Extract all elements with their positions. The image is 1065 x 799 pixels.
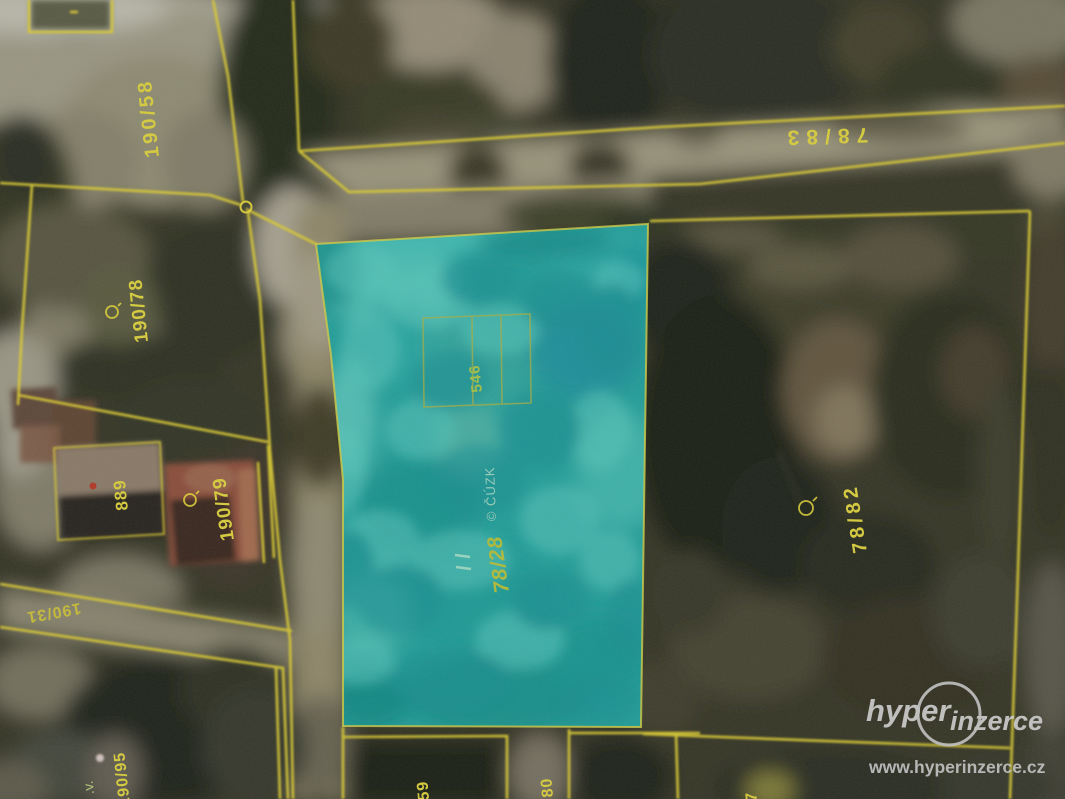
svg-text:inzerce: inzerce: [950, 706, 1043, 736]
svg-text:hyper: hyper: [866, 693, 952, 728]
svg-text:www.hyperinzerce.cz: www.hyperinzerce.cz: [868, 757, 1046, 777]
